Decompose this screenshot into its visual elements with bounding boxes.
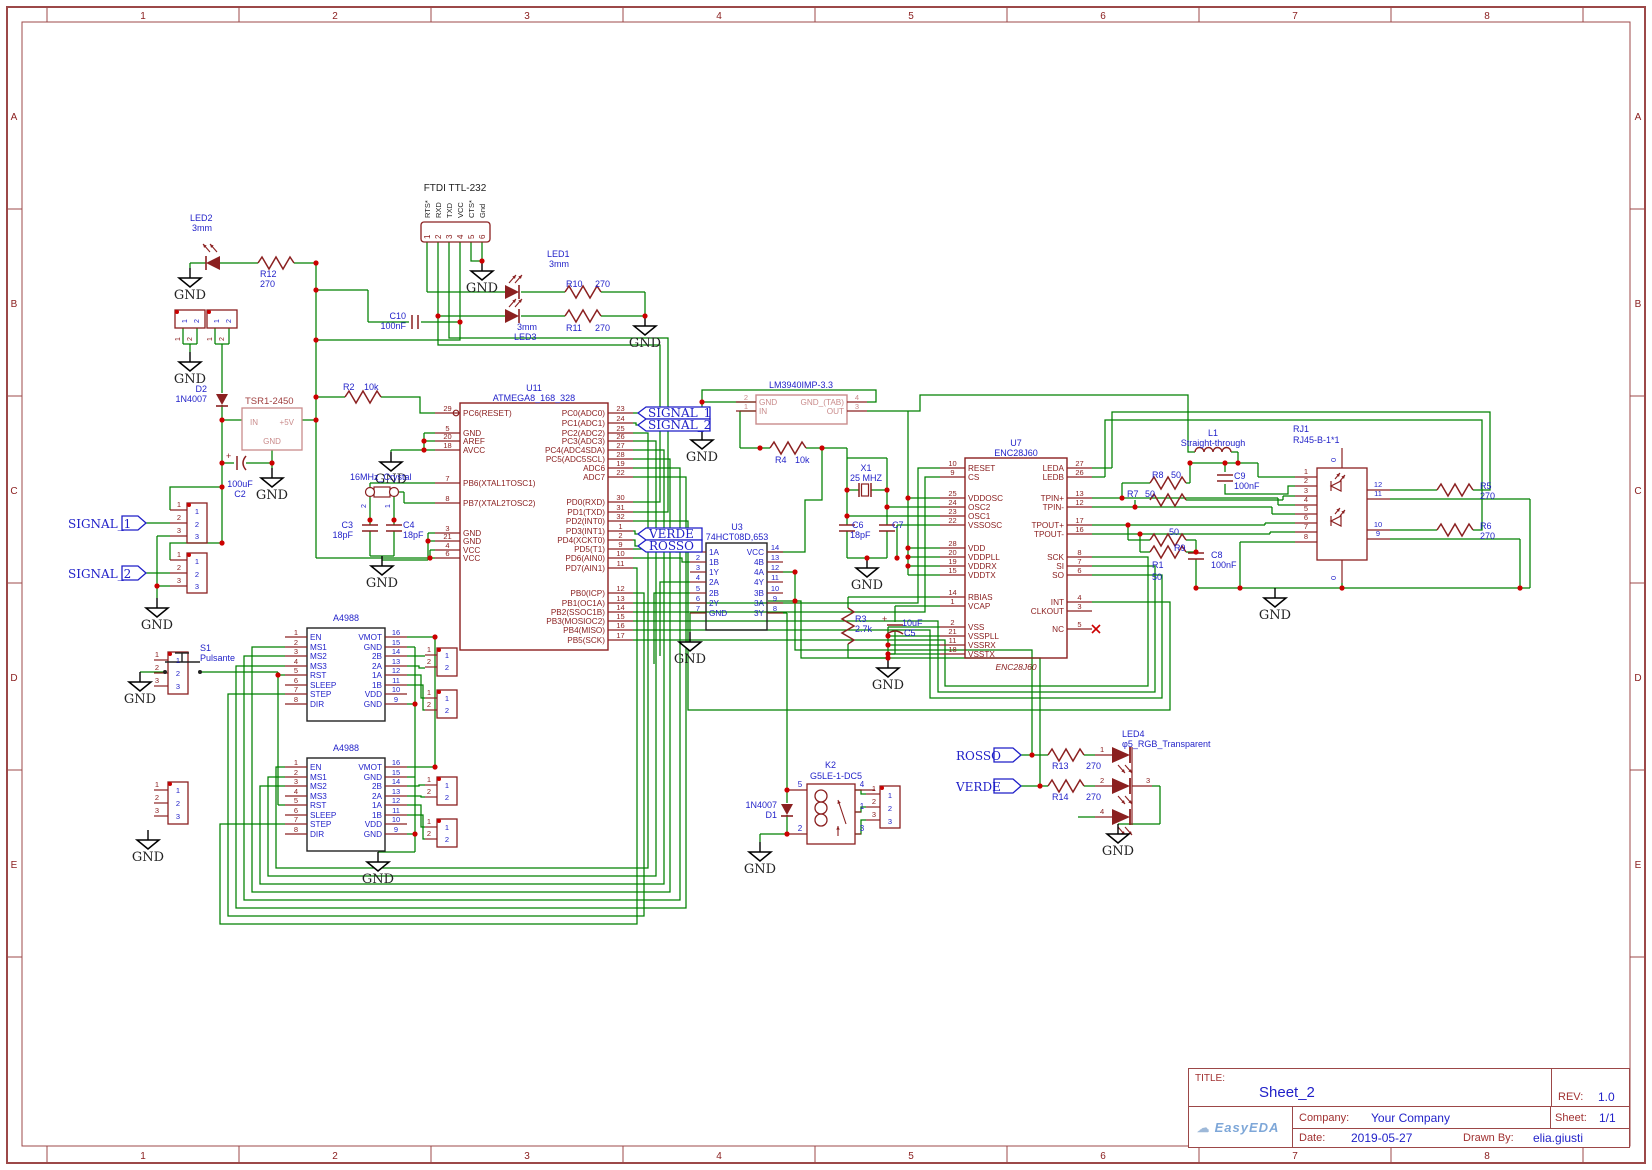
label: 1: [214, 319, 221, 323]
gnd-triangle: [380, 462, 402, 471]
led-LED4-red[interactable]: [1112, 747, 1132, 773]
pin-number: 11: [392, 806, 400, 815]
label: 100nF: [1234, 481, 1260, 491]
wire[interactable]: [702, 390, 876, 402]
pin-number: 6: [696, 594, 700, 603]
label: TXD: [445, 202, 454, 218]
relay-coil: [815, 802, 827, 814]
label: 270: [595, 279, 610, 289]
gnd-symbol[interactable]: GND: [629, 316, 661, 351]
crystal-16mhz[interactable]: [390, 488, 399, 497]
netflag-rosso-led[interactable]: ROSSO: [956, 748, 1021, 763]
pin-name: ADC6: [583, 464, 605, 473]
netflag-rosso-led-label: ROSSO: [956, 749, 1001, 763]
resistor-R12[interactable]: [258, 257, 294, 269]
frame-col-number: 8: [1484, 11, 1490, 22]
gnd-symbol[interactable]: GND: [174, 268, 206, 303]
frame-col-number: 5: [908, 11, 914, 22]
rj45-led-b[interactable]: [1331, 516, 1341, 526]
label: R8: [1152, 470, 1164, 480]
resistor-R14[interactable]: [1048, 780, 1084, 792]
wire[interactable]: [381, 397, 435, 413]
gnd-triangle: [679, 642, 701, 651]
label: R9: [1174, 543, 1186, 553]
ic-A4988-1[interactable]: A49881EN2MS13MS24MS35RST6SLEEP7STEP8DIR1…: [285, 613, 407, 721]
diode-D2[interactable]: [216, 394, 228, 406]
label: Pulsante: [200, 653, 235, 663]
diode-D1[interactable]: [781, 804, 793, 816]
frame-col-number: 6: [1100, 11, 1106, 22]
capacitor-C3[interactable]: [362, 525, 378, 531]
label: 1: [195, 557, 199, 566]
resistor-R3[interactable]: [842, 608, 854, 644]
rj45-led-a[interactable]: [1331, 473, 1345, 491]
junction-dot: [1193, 585, 1198, 590]
label: LED3: [514, 332, 537, 342]
led-LED4-green[interactable]: [1112, 778, 1130, 794]
netflag-rosso[interactable]: ROSSO: [638, 539, 702, 553]
pin-number: 12: [771, 563, 779, 572]
gnd-label: GND: [132, 850, 164, 865]
label: 1: [155, 650, 159, 659]
label: 10k: [795, 455, 810, 465]
wire[interactable]: [633, 540, 638, 546]
relay-coil-switch[interactable]: [815, 790, 846, 836]
crystal-X1[interactable]: [859, 483, 871, 497]
label: 1: [427, 817, 431, 826]
pin-name: 1Y: [709, 568, 720, 577]
pin-name: VDDOSC: [968, 494, 1003, 503]
gnd-symbol[interactable]: GND: [872, 658, 904, 693]
pin-name: PC4(ADC4SDA): [545, 446, 605, 455]
pin-number: 1: [950, 597, 954, 606]
gnd-symbol[interactable]: GND: [686, 430, 718, 465]
label: 2: [361, 504, 368, 508]
pin-number: 3: [294, 647, 298, 656]
crystal-16mhz[interactable]: [366, 488, 375, 497]
date-value[interactable]: 2019-05-27: [1351, 1131, 1412, 1145]
pin-number: 9: [950, 468, 954, 477]
pin-number: 1: [294, 758, 298, 767]
gnd-symbol[interactable]: GND: [744, 842, 776, 877]
gnd-symbol[interactable]: GND: [124, 672, 156, 707]
netflag-signal2-label: SIGNAL_2: [648, 418, 711, 432]
label: 2: [187, 337, 194, 341]
pin-name: 2B: [372, 782, 383, 791]
junction-dot: [894, 555, 899, 560]
led-LED3[interactable]: [505, 299, 522, 323]
wire[interactable]: [407, 805, 425, 827]
led-LED1[interactable]: [505, 285, 519, 299]
pin-name: 3A: [754, 599, 765, 608]
label: K2: [825, 760, 836, 770]
label: R5: [1480, 481, 1492, 491]
resistor-R2[interactable]: [345, 391, 381, 403]
label: LED4: [1122, 729, 1145, 739]
label: 2: [1100, 776, 1104, 785]
sheet-title[interactable]: Sheet_2: [1259, 1084, 1315, 1101]
ic-A4988-2-title: A4988: [333, 743, 359, 753]
label: 3: [860, 824, 865, 833]
gnd-symbol[interactable]: GND: [674, 632, 706, 667]
crystal-16mhz[interactable]: [374, 487, 390, 497]
junction-dot: [1517, 585, 1522, 590]
resistor-R6[interactable]: [1437, 524, 1473, 536]
junction-dot: [154, 583, 159, 588]
junction-dot: [792, 569, 797, 574]
pin-name: 2A: [372, 662, 383, 671]
junction-dot: [313, 260, 318, 265]
pin-number: 11: [949, 636, 957, 645]
junction-dot: [885, 642, 890, 647]
gnd-label: GND: [256, 488, 288, 503]
capacitor-C10[interactable]: [412, 315, 418, 329]
led-LED3[interactable]: [505, 309, 519, 323]
pin-number: 23: [948, 507, 956, 516]
wire[interactable]: [407, 666, 425, 668]
label: 3: [155, 676, 159, 685]
led-LED4-blue[interactable]: [1112, 809, 1130, 825]
pin-number: 6: [294, 806, 298, 815]
led-LED2[interactable]: [203, 244, 220, 270]
resistor-R5[interactable]: [1437, 484, 1473, 496]
company-value[interactable]: Your Company: [1371, 1111, 1450, 1125]
label: 10: [1374, 520, 1382, 529]
pin-name: AREF: [463, 437, 485, 446]
netflag-verde-led[interactable]: VERDE: [955, 779, 1021, 794]
ic-LM3940-title: LM3940IMP-3.3: [769, 380, 833, 390]
frame-col-number: 2: [332, 1151, 338, 1162]
gnd-symbol[interactable]: GND: [256, 468, 288, 503]
resistor-R12[interactable]: [258, 257, 294, 269]
inductor-L1[interactable]: [1195, 448, 1231, 453]
pin-number: 16: [392, 628, 400, 637]
label: RJ45-B-1*1: [1293, 435, 1340, 445]
gnd-triangle: [146, 608, 168, 617]
pin-number: 30: [616, 493, 624, 502]
crystal-16mhz[interactable]: [366, 487, 399, 497]
label: 0: [1329, 576, 1338, 580]
led-LED4-green[interactable]: [1112, 778, 1132, 804]
led-LED4-blue[interactable]: [1112, 809, 1132, 835]
resistor-R2[interactable]: [345, 391, 381, 403]
label: 6: [1304, 513, 1308, 522]
sheet-value[interactable]: 1/1: [1599, 1111, 1616, 1125]
junction-dot: [421, 438, 426, 443]
pin-number: 11: [392, 676, 400, 685]
wires: [140, 242, 1530, 924]
netflag-verde-led-label: VERDE: [955, 780, 1001, 794]
label: 1: [427, 688, 431, 697]
resistor-R4[interactable]: [770, 442, 806, 454]
gnd-symbol[interactable]: GND: [1102, 824, 1134, 859]
pin-number: 2: [744, 393, 748, 402]
label: 4: [456, 234, 465, 239]
junction-dot: [1237, 585, 1242, 590]
netflag-rosso-label: ROSSO: [649, 539, 694, 553]
pin-name: VSSTX: [968, 650, 995, 659]
label: 10uF: [902, 618, 923, 628]
gnd-symbol[interactable]: GND: [132, 830, 164, 865]
label: 2: [176, 799, 180, 808]
arrow-head: [837, 800, 840, 804]
label: 2: [427, 700, 431, 709]
junction-dot: [844, 487, 849, 492]
label: R12: [260, 269, 277, 279]
pin-name: 2B: [372, 652, 383, 661]
label: FTDI TTL-232: [424, 183, 487, 194]
gnd-symbol[interactable]: GND: [366, 556, 398, 591]
junction-dot: [313, 394, 318, 399]
label: 1: [1304, 467, 1308, 476]
capacitor-C5[interactable]: +: [882, 614, 903, 634]
capacitor-C4[interactable]: [386, 525, 402, 531]
pin-number: 4: [294, 657, 298, 666]
capacitor-C2[interactable]: [243, 456, 246, 470]
junction-dot: [885, 633, 890, 638]
pin-name: VSSPLL: [968, 632, 999, 641]
resistor-R7[interactable]: [1150, 494, 1186, 506]
frame-row-letter: C: [10, 486, 17, 497]
label: 1: [177, 550, 181, 559]
junction-dot: [457, 319, 462, 324]
label: Gnd: [478, 204, 487, 218]
label: 3mm: [192, 223, 212, 233]
gnd-symbol[interactable]: GND: [174, 352, 206, 387]
wire[interactable]: [407, 796, 425, 797]
resistor-R4[interactable]: [770, 442, 806, 454]
junction-dot: [885, 655, 890, 660]
ic-LM3940[interactable]: LM3940IMP-3.32GND1IN4GND_(TAB)3OUT: [736, 380, 867, 424]
gnd-label: GND: [1259, 608, 1291, 623]
junction-dot: [884, 487, 889, 492]
pin-name: VCC: [747, 548, 764, 557]
led-LED2[interactable]: [206, 256, 220, 270]
inductor-L1[interactable]: [1195, 448, 1231, 453]
label: 50: [1169, 527, 1179, 537]
label: R2: [343, 382, 355, 392]
junction-dot: [757, 445, 762, 450]
header-2pin-b[interactable]: [207, 310, 237, 328]
pin-name: 4Y: [754, 578, 765, 587]
wire[interactable]: [908, 395, 1195, 452]
resistor-R11[interactable]: [565, 310, 601, 322]
junction-dot: [313, 337, 318, 342]
gnd-triangle: [691, 440, 713, 449]
label: 2: [798, 824, 803, 833]
pin-name: 1A: [372, 671, 383, 680]
pin-name: GND: [364, 830, 382, 839]
label: 1: [888, 791, 892, 800]
resistor-R7[interactable]: [1150, 494, 1186, 506]
label: 18pF: [403, 530, 424, 540]
nc-cross[interactable]: [1092, 625, 1100, 633]
pin-number: 9: [618, 540, 622, 549]
diode-D1[interactable]: [781, 804, 793, 815]
drawn-by-value[interactable]: elia.giusti: [1533, 1131, 1583, 1145]
ic-A4988-2[interactable]: A49881EN2MS13MS24MS35RST6SLEEP7STEP8DIR1…: [285, 743, 407, 851]
pushbutton-S1[interactable]: [163, 653, 202, 674]
label: 2: [226, 319, 233, 323]
junction-dot: [412, 831, 417, 836]
ic-U3-title: U3: [731, 522, 743, 532]
wire[interactable]: [471, 242, 482, 261]
pin-number: 21: [443, 532, 451, 541]
pin-name: EN: [310, 633, 321, 642]
pin-name: 2Y: [709, 599, 720, 608]
pin-number: 13: [1075, 489, 1083, 498]
ic-U3[interactable]: U374HCT08D,65311A21B31Y42A52B62Y7GND14VC…: [690, 522, 783, 630]
pin-number: 4: [696, 573, 700, 582]
pin-number: 19: [948, 557, 956, 566]
pin-number: 26: [616, 432, 624, 441]
gnd-label: GND: [366, 576, 398, 591]
gnd-triangle: [179, 278, 201, 287]
frame-inner: [22, 22, 1630, 1146]
pin-number: 8: [294, 695, 298, 704]
label: C4: [403, 520, 415, 530]
wire[interactable]: [407, 785, 425, 786]
wire[interactable]: [633, 423, 638, 425]
pin-name: PD4(XCKT0): [557, 536, 605, 545]
ic-U11[interactable]: U11ATMEGA8_168_32829PC6(RESET)5GND20AREF…: [435, 383, 633, 650]
frame-row-letter: D: [10, 673, 17, 684]
pin-name: PC3(ADC3): [562, 437, 605, 446]
led-LED1[interactable]: [505, 275, 522, 299]
resistor-R13[interactable]: [1048, 749, 1084, 761]
pin-name: 2A: [372, 792, 383, 801]
pin-name: CLKOUT: [1031, 607, 1064, 616]
pin-name: 1B: [709, 558, 720, 567]
resistor-R13[interactable]: [1048, 749, 1084, 761]
gnd-label: GND: [362, 872, 394, 887]
pushbutton-S1[interactable]: [163, 670, 167, 674]
crystal-X1[interactable]: [862, 484, 869, 496]
pin-number: 7: [294, 815, 298, 824]
pin-name: 2A: [709, 578, 720, 587]
pin-name: GND_(TAB): [800, 398, 844, 407]
pin-number: 2: [618, 531, 622, 540]
label: 2: [445, 793, 449, 802]
pin-number: 10: [771, 584, 779, 593]
label: 10k: [364, 382, 379, 392]
capacitor-C2[interactable]: +: [226, 451, 246, 470]
label: Straight-through: [1181, 438, 1246, 448]
label: 1: [1100, 745, 1104, 754]
pin-number: 15: [948, 566, 956, 575]
pin-number: 16: [392, 758, 400, 767]
junction-dot: [784, 831, 789, 836]
gnd-symbol[interactable]: GND: [362, 852, 394, 887]
header-2pin-a[interactable]: [175, 310, 205, 328]
pin-name: 3B: [754, 589, 765, 598]
pin-name: GND: [364, 643, 382, 652]
resistor-R5[interactable]: [1437, 484, 1473, 496]
pin-name: 3Y: [754, 609, 765, 618]
ic-U7[interactable]: U7ENC28J6010RESET9CS25VDDOSC24OSC223OSC1…: [940, 438, 1092, 659]
relay-k2[interactable]: [807, 784, 855, 844]
resistor-R3[interactable]: [842, 608, 854, 644]
netflag-signal2[interactable]: SIGNAL_2: [638, 418, 711, 432]
pin-number: 14: [771, 543, 779, 552]
gnd-triangle: [179, 362, 201, 371]
ic-U7-title: ENC28J60: [994, 448, 1038, 458]
gnd-label: GND: [124, 692, 156, 707]
led-LED4-red[interactable]: [1112, 747, 1130, 763]
pin-number: 12: [392, 796, 400, 805]
label: 2: [194, 319, 201, 323]
label: G5LE-1-DC5: [810, 771, 862, 781]
label: RJ1: [1293, 424, 1309, 434]
wire[interactable]: [633, 558, 690, 562]
pin-number: 7: [1077, 557, 1081, 566]
frame-outer: [7, 7, 1645, 1163]
diode-D2[interactable]: [216, 394, 228, 405]
gnd-symbol[interactable]: GND: [141, 598, 173, 633]
label: 2: [445, 835, 449, 844]
rev-value[interactable]: 1.0: [1598, 1090, 1615, 1104]
resistor-R6[interactable]: [1437, 524, 1473, 536]
pin-number: 10: [948, 459, 956, 468]
pin-number: 1: [618, 522, 622, 531]
rj45-led-b[interactable]: [1331, 508, 1345, 526]
resistor-R11[interactable]: [565, 310, 601, 322]
junction-dot: [1187, 460, 1192, 465]
pin-name: PC1(ADC1): [562, 419, 605, 428]
pin-number: 15: [616, 612, 624, 621]
label: 1: [872, 784, 876, 793]
label: 3: [177, 576, 181, 585]
pushbutton-S1[interactable]: [198, 670, 202, 674]
pin-number: 10: [392, 815, 400, 824]
gnd-symbol[interactable]: GND: [851, 558, 883, 593]
company-label: Company:: [1299, 1112, 1349, 1124]
junction-dot: [367, 517, 372, 522]
label: R10: [566, 279, 583, 289]
label: C10: [389, 311, 406, 321]
frame-row-letter: D: [1634, 673, 1641, 684]
pin-name: PB0(ICP): [570, 589, 605, 598]
gnd-symbol[interactable]: GND: [1259, 588, 1291, 623]
frame-col-number: 4: [716, 1151, 722, 1162]
netflag-signal1-left[interactable]: SIGNAL_1: [68, 516, 146, 531]
rj45-led-a[interactable]: [1331, 481, 1341, 491]
pin-number: 9: [773, 594, 777, 603]
pin-name: TPOUT-: [1034, 530, 1064, 539]
gnd-symbol[interactable]: GND: [466, 261, 498, 296]
connector-pin1-dot: [437, 819, 441, 823]
capacitor-C9[interactable]: [1217, 475, 1233, 481]
label: 1: [176, 786, 180, 795]
pin-number: 23: [616, 404, 624, 413]
resistor-R14[interactable]: [1048, 780, 1084, 792]
pin-number: 3: [294, 777, 298, 786]
pin-name: VSSRX: [968, 641, 996, 650]
label: 1: [423, 234, 432, 239]
pin-number: 32: [616, 512, 624, 521]
wire[interactable]: [407, 675, 425, 698]
label: 270: [1480, 491, 1495, 501]
label: ENC28J60: [995, 662, 1036, 672]
wire[interactable]: [633, 531, 638, 534]
gnd-label: GND: [1102, 844, 1134, 859]
label: TSR1-2450: [245, 396, 294, 407]
netflag-signal2-left[interactable]: SIGNAL_2: [68, 566, 146, 581]
pin-name: MS2: [310, 782, 327, 791]
junction-dot: [1037, 783, 1042, 788]
pin-number: 9: [394, 695, 398, 704]
pin-name: STEP: [310, 820, 332, 829]
